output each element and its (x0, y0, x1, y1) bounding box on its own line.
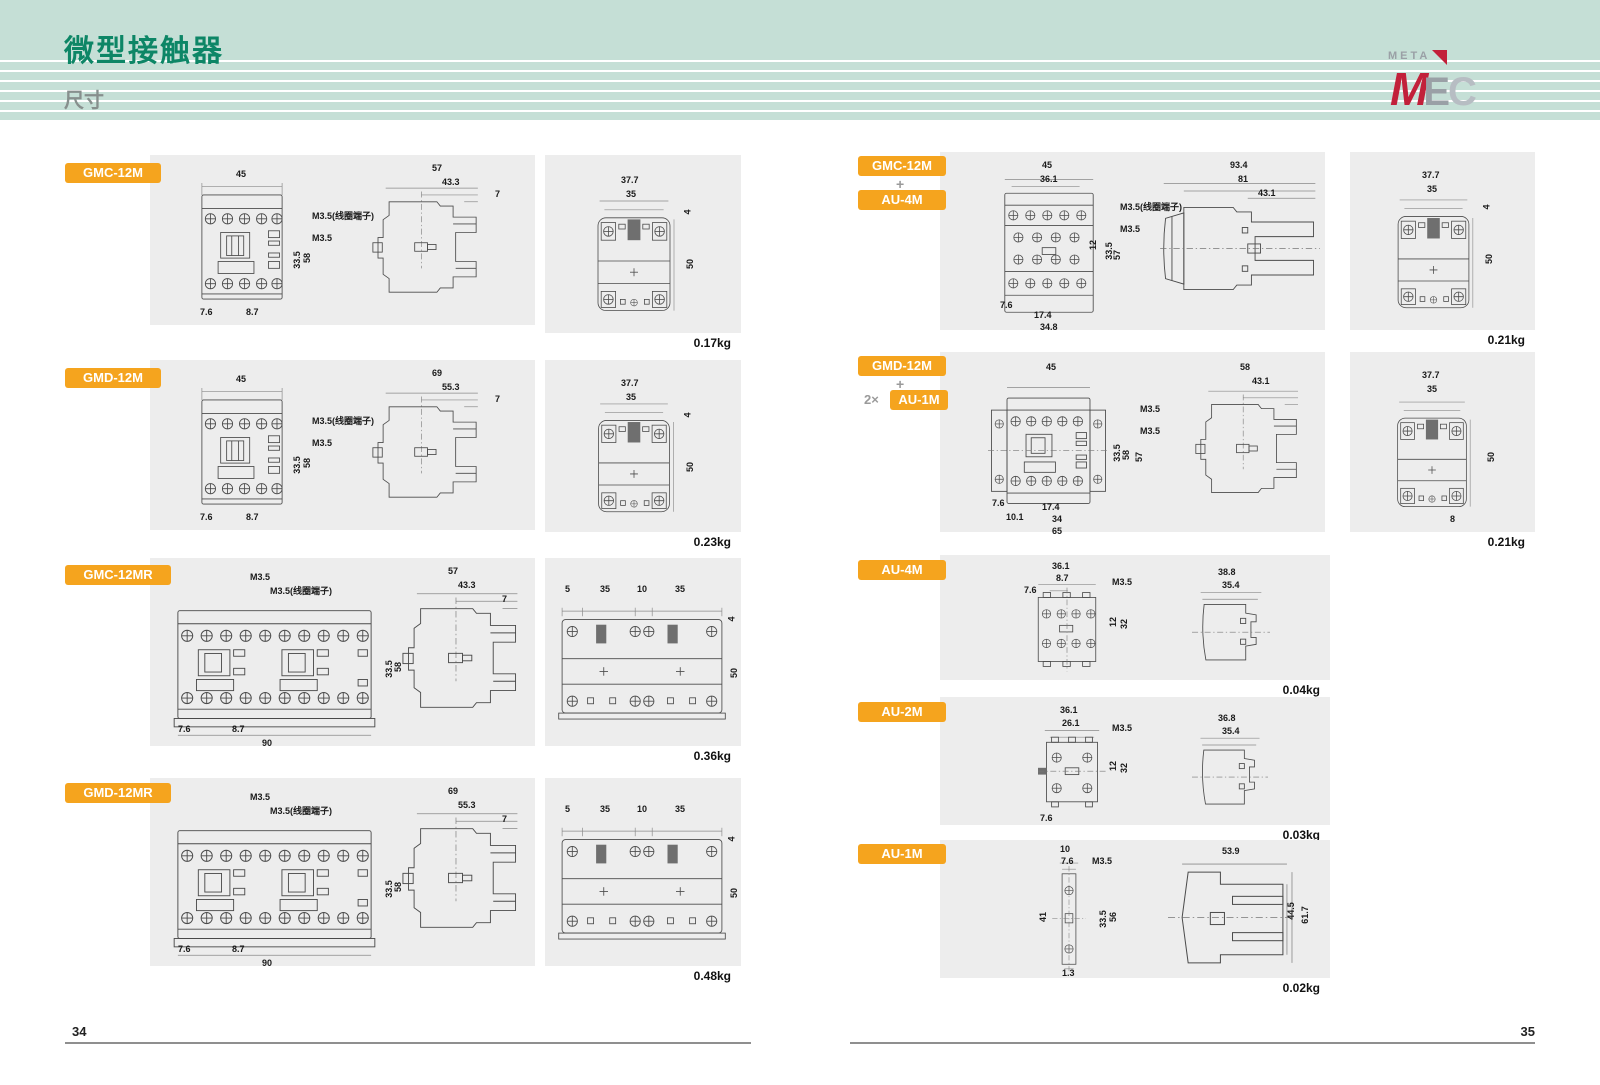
dim-label: 50 (1484, 254, 1494, 264)
dim-label: 69 (432, 368, 442, 378)
dim-label: 8.7 (246, 512, 259, 522)
dim-label: 5 (565, 804, 570, 814)
section-badge-gmd-12m-combo: GMD-12M (858, 356, 946, 376)
dim-label: M3.5(线圈端子) (312, 211, 374, 221)
gmd-12m-au1m-rear-view (1390, 398, 1474, 513)
logo-letter-m: M (1390, 63, 1426, 115)
au-1m-side-view (1168, 860, 1294, 973)
dim-label: 37.7 (621, 175, 639, 185)
dim-label: 4 (683, 412, 693, 417)
weight-label: 0.36kg (545, 749, 741, 763)
au-4m-panel: 36.1 8.7 7.6 M3.5 12 32 38.8 35.4 (940, 555, 1330, 680)
page-number-left: 34 (72, 1024, 86, 1039)
dim-label: M3.5(线圈端子) (312, 416, 374, 426)
footer-rule-left (65, 1042, 751, 1044)
dim-label: 35 (600, 804, 610, 814)
dim-label: 35.4 (1222, 580, 1240, 590)
gmd-12m-front-side-panel: 45 M3.5(线圈端子) M3.5 33.5 58 7.6 8.7 69 55… (150, 360, 535, 530)
gmc-12m-front-side-panel: 45 M3.5(线圈端子) M3.5 33.5 58 7.6 8.7 57 43… (150, 155, 535, 325)
dim-label: 45 (236, 374, 246, 384)
dim-label: 35.4 (1222, 726, 1240, 736)
dim-label: 33.5 (292, 251, 302, 269)
dim-label: 4 (727, 616, 737, 621)
dim-label: 65 (1052, 526, 1062, 536)
section-badge-gmd-12mr: GMD-12MR (65, 783, 171, 803)
au-1m-panel: 10 7.6 M3.5 41 33.5 56 1.3 53.9 44.5 61.… (940, 840, 1330, 978)
gmc-12m-au4m-front-view (998, 176, 1100, 321)
header-band (0, 0, 1600, 120)
gmc-12m-au4m-rear-view (1390, 196, 1477, 314)
dim-label: 37.7 (1422, 370, 1440, 380)
dim-label: 50 (1486, 452, 1496, 462)
dim-label: 90 (262, 738, 272, 748)
dim-label: 35 (1427, 184, 1437, 194)
dim-label: 26.1 (1062, 718, 1080, 728)
logo-letter-c: C (1448, 70, 1477, 114)
dim-label: 7.6 (992, 498, 1005, 508)
gmd-12m-au1m-front-view (988, 384, 1109, 514)
dim-label: 81 (1238, 174, 1248, 184)
weight-label: 0.48kg (545, 969, 741, 983)
dim-label: 57 (1112, 250, 1122, 260)
au-2m-panel: 36.1 26.1 M3.5 12 32 7.6 36.8 35.4 (940, 697, 1330, 825)
dim-label: 57 (448, 566, 458, 576)
dim-label: M3.5(线圈端子) (1120, 202, 1182, 212)
section-badge-gmc-12m: GMC-12M (65, 163, 161, 183)
dim-label: 43.1 (1252, 376, 1270, 386)
dim-label: 35 (675, 584, 685, 594)
gmd-12m-side-view (372, 388, 483, 516)
dim-label: 35 (1427, 384, 1437, 394)
dim-label: 7.6 (200, 307, 213, 317)
dim-label: 69 (448, 786, 458, 796)
dim-label: M3.5 (1092, 856, 1112, 866)
dim-label: 8.7 (246, 307, 259, 317)
weight-label: 0.21kg (1350, 333, 1535, 347)
gmd-12mr-rear-panel: 5 35 10 35 4 50 (545, 778, 741, 966)
dim-label: 7 (502, 814, 507, 824)
dim-label: 34.8 (1040, 322, 1058, 332)
gmd-12mr-side-view (402, 808, 523, 948)
dim-label: 12 (1108, 617, 1118, 627)
gmc-12mr-front-view (172, 594, 377, 738)
gmc-12m-au4m-rear-panel: 37.7 35 4 50 (1350, 152, 1535, 330)
dim-label: 7.6 (200, 512, 213, 522)
dim-label: 37.7 (621, 378, 639, 388)
section-badge-gmc-12m-combo: GMC-12M (858, 156, 946, 176)
dim-label: 36.1 (1040, 174, 1058, 184)
dim-label: 43.3 (442, 177, 460, 187)
gmd-12m-au1m-side-view (1195, 386, 1303, 511)
dim-label: 57 (432, 163, 442, 173)
dim-label: 4 (1482, 204, 1492, 209)
dim-label: 7 (495, 394, 500, 404)
gmc-12m-rear-panel: 37.7 35 4 50 (545, 155, 741, 333)
dim-label: 17.4 (1034, 310, 1052, 320)
dim-label: 50 (729, 888, 739, 898)
dim-label: 10 (1060, 844, 1070, 854)
dim-label: M3.5 (1112, 723, 1132, 733)
dim-label: 35 (675, 804, 685, 814)
dim-label: M3.5(线圈端子) (270, 586, 332, 596)
section-badge-au-4m: AU-4M (858, 560, 946, 580)
dim-label: M3.5 (312, 438, 332, 448)
section-badge-gmd-12m: GMD-12M (65, 368, 161, 388)
gmc-12m-side-view (372, 183, 483, 311)
section-badge-au-1m-combo: AU-1M (890, 390, 948, 410)
dim-label: 57 (1134, 452, 1144, 462)
multiplier-label: 2× (864, 392, 879, 407)
gmd-12m-front-view (195, 388, 289, 516)
au-4m-side-view (1192, 587, 1270, 667)
dim-label: 1.3 (1062, 968, 1075, 978)
dim-label: 58 (393, 882, 403, 892)
dim-label: M3.5(线圈端子) (270, 806, 332, 816)
dim-label: 35 (600, 584, 610, 594)
dim-label: M3.5 (312, 233, 332, 243)
dim-label: M3.5 (1140, 426, 1160, 436)
dim-label: 4 (683, 209, 693, 214)
gmc-12m-au4m-front-side-panel: 45 36.1 M3.5(线圈端子) M3.5 12 33.5 57 7.6 1… (940, 152, 1325, 330)
gmc-12mr-rear-view (557, 606, 727, 725)
dim-label: 8 (1450, 514, 1455, 524)
dim-label: 8.7 (1056, 573, 1069, 583)
dim-label: 50 (729, 668, 739, 678)
dim-label: 55.3 (458, 800, 476, 810)
dim-label: 7 (495, 189, 500, 199)
dim-label: 35 (626, 189, 636, 199)
gmc-12mr-side-view (402, 588, 523, 728)
dim-label: 45 (236, 169, 246, 179)
dim-label: 35 (626, 392, 636, 402)
gmc-12m-front-view (195, 183, 289, 311)
dim-label: 10 (637, 804, 647, 814)
page-number-right: 35 (1505, 1024, 1535, 1039)
dim-label: 61.7 (1300, 906, 1310, 924)
dim-label: 58 (302, 253, 312, 263)
dim-label: 36.1 (1052, 561, 1070, 571)
au-2m-front-view (1038, 727, 1106, 812)
dim-label: 58 (393, 662, 403, 672)
dim-label: 45 (1042, 160, 1052, 170)
dim-label: 36.1 (1060, 705, 1078, 715)
page-subtitle: 尺寸 (64, 84, 104, 113)
dim-label: 33.5 (292, 456, 302, 474)
dim-label: 50 (685, 462, 695, 472)
dim-label: 10 (637, 584, 647, 594)
dim-label: 10.1 (1006, 512, 1024, 522)
dim-label: M3.5 (1120, 224, 1140, 234)
dim-label: 7.6 (1000, 300, 1013, 310)
weight-label: 0.23kg (545, 535, 741, 549)
dim-label: 7 (502, 594, 507, 604)
weight-label: 0.17kg (545, 336, 741, 350)
dim-label: 43.3 (458, 580, 476, 590)
weight-label: 0.21kg (1350, 535, 1535, 549)
page-title: 微型接触器 (64, 26, 224, 70)
dim-label: 58 (1121, 450, 1131, 460)
dim-label: 7.6 (1040, 813, 1053, 823)
dim-label: 5 (565, 584, 570, 594)
gmc-12mr-front-side-panel: M3.5 M3.5(线圈端子) 33.5 58 7.6 8.7 90 57 43… (150, 558, 535, 746)
gmd-12m-au1m-rear-panel: 37.7 35 50 8 (1350, 352, 1535, 532)
gmd-12mr-rear-view (557, 826, 727, 945)
gmc-12mr-rear-panel: 5 35 10 35 4 50 (545, 558, 741, 746)
section-badge-gmc-12mr: GMC-12MR (65, 565, 171, 585)
dim-label: 8.7 (232, 944, 245, 954)
dim-label: M3.5 (1112, 577, 1132, 587)
dim-label: 12 (1088, 240, 1098, 250)
gmd-12mr-front-side-panel: M3.5 M3.5(线圈端子) 33.5 58 7.6 8.7 90 69 55… (150, 778, 535, 966)
dim-label: 44.5 (1286, 902, 1296, 920)
au-2m-side-view (1192, 733, 1268, 811)
dim-label: 7.6 (178, 944, 191, 954)
section-badge-au-1m: AU-1M (858, 844, 946, 864)
dim-label: 7.6 (1061, 856, 1074, 866)
dim-label: 38.8 (1218, 567, 1236, 577)
section-badge-au-4m-combo: AU-4M (858, 190, 946, 210)
dim-label: 58 (1240, 362, 1250, 372)
dim-label: 41 (1038, 912, 1048, 922)
dim-label: 34 (1052, 514, 1062, 524)
dim-label: M3.5 (250, 792, 270, 802)
dim-label: 12 (1108, 761, 1118, 771)
dim-label: 45 (1046, 362, 1056, 372)
gmd-12m-rear-panel: 37.7 35 4 50 (545, 360, 741, 532)
dim-label: 93.4 (1230, 160, 1248, 170)
dim-label: 36.8 (1218, 713, 1236, 723)
gmd-12m-au1m-front-side-panel: 45 M3.5 M3.5 33.5 58 57 7.6 10.1 17.4 34… (940, 352, 1325, 532)
dim-label: 50 (685, 259, 695, 269)
dim-label: 8.7 (232, 724, 245, 734)
dim-label: 43.1 (1258, 188, 1276, 198)
footer-rule-right (850, 1042, 1535, 1044)
dim-label: 53.9 (1222, 846, 1240, 856)
weight-label: 0.04kg (940, 683, 1330, 697)
dim-label: 56 (1108, 912, 1118, 922)
logo-mec-row: MEC (1390, 62, 1528, 116)
dim-label: 7.6 (1024, 585, 1037, 595)
logo-letter-e: E (1423, 70, 1450, 114)
section-badge-au-2m: AU-2M (858, 702, 946, 722)
dim-label: 37.7 (1422, 170, 1440, 180)
brand-logo: META MEC (1388, 50, 1528, 114)
dim-label: M3.5 (250, 572, 270, 582)
dim-label: 33.5 (1098, 910, 1108, 928)
dim-label: 58 (302, 458, 312, 468)
gmc-12m-rear-view (590, 197, 678, 317)
weight-label: 0.02kg (940, 981, 1330, 995)
logo-meta-text: META (1388, 50, 1430, 62)
au-1m-front-view (1052, 860, 1086, 975)
gmd-12m-rear-view (590, 400, 678, 518)
dim-label: 7.6 (178, 724, 191, 734)
gmc-12m-au4m-side-view (1160, 180, 1320, 317)
au-4m-front-view (1030, 581, 1104, 673)
gmd-12mr-front-view (172, 814, 377, 958)
dim-label: 4 (727, 836, 737, 841)
dim-label: 90 (262, 958, 272, 968)
dim-label: M3.5 (1140, 404, 1160, 414)
dim-label: 32 (1119, 619, 1129, 629)
dim-label: 32 (1119, 763, 1129, 773)
dim-label: 55.3 (442, 382, 460, 392)
dim-label: 17.4 (1042, 502, 1060, 512)
